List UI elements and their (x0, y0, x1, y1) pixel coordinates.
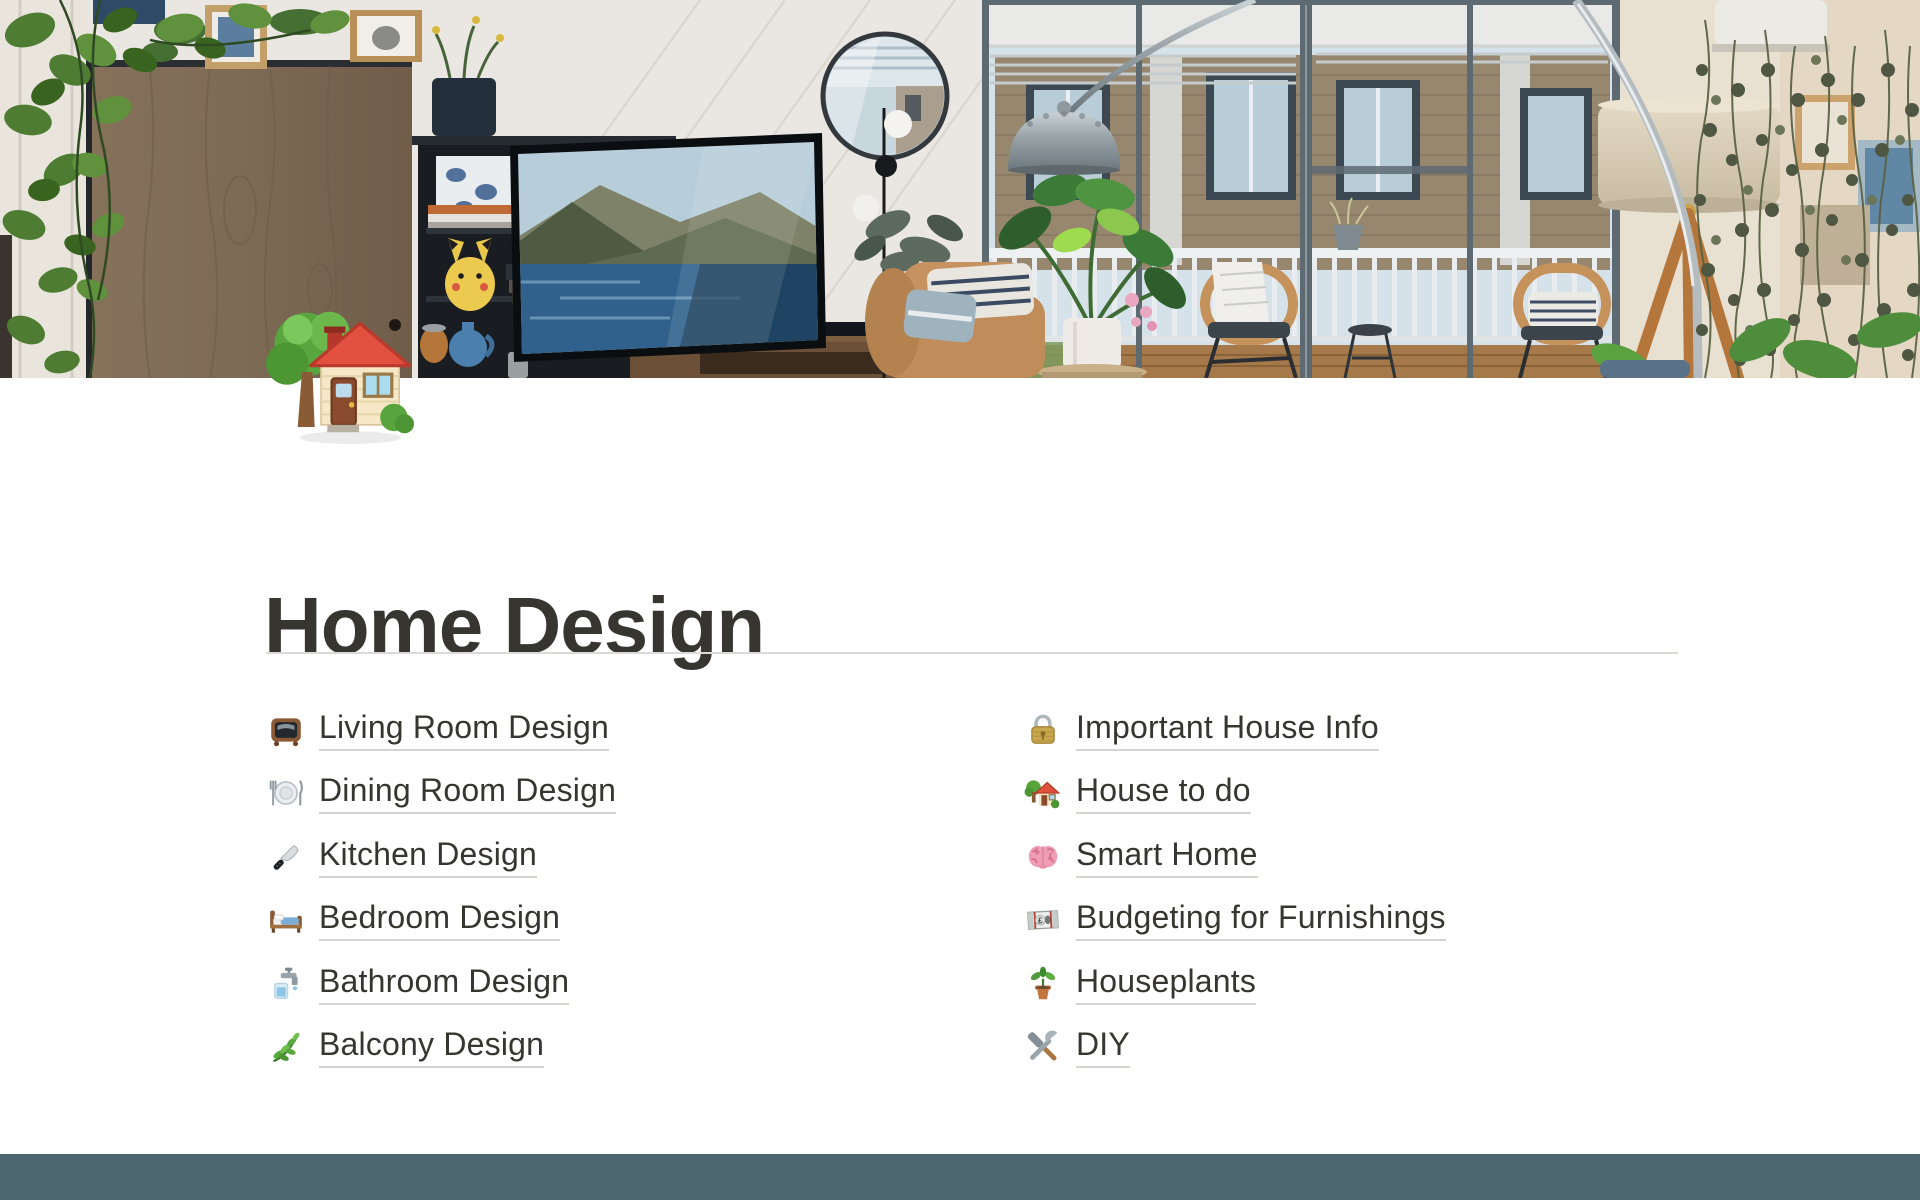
page-link-houseplants[interactable]: Houseplants (1023, 963, 1256, 1005)
page-link-bathroom-design[interactable]: Bathroom Design (266, 963, 569, 1005)
page-link-label: Dining Room Design (319, 772, 616, 814)
brain-icon (1023, 837, 1063, 877)
hammer-wrench-icon (1023, 1027, 1063, 1067)
page-link-kitchen-design[interactable]: Kitchen Design (266, 836, 537, 878)
page-link-living-room-design[interactable]: Living Room Design (266, 709, 609, 751)
page-link-label: Bathroom Design (319, 963, 569, 1005)
page-link-dining-room-design[interactable]: Dining Room Design (266, 772, 616, 814)
pound-banknote-icon: £ (1023, 900, 1063, 940)
svg-text:£: £ (1038, 915, 1044, 925)
fork-knife-plate-icon (266, 773, 306, 813)
page-link-house-to-do[interactable]: House to do (1023, 772, 1251, 814)
kitchen-knife-icon (266, 837, 306, 877)
page-link-label: Bedroom Design (319, 899, 560, 941)
herb-icon (266, 1027, 306, 1067)
link-column-left: Living Room Design Dining Room Design Ki… (266, 698, 921, 1079)
tv-icon (266, 710, 306, 750)
divider (266, 652, 1678, 654)
page-link-label: Budgeting for Furnishings (1076, 899, 1446, 941)
bottom-bar (0, 1154, 1920, 1200)
page-link-smart-home[interactable]: Smart Home (1023, 836, 1258, 878)
page-link-budgeting-for-furnishings[interactable]: £ Budgeting for Furnishings (1023, 899, 1446, 941)
page-link-important-house-info[interactable]: Important House Info (1023, 709, 1379, 751)
page-link-label: Kitchen Design (319, 836, 537, 878)
page-icon-house-with-garden[interactable] (266, 298, 414, 446)
page-link-balcony-design[interactable]: Balcony Design (266, 1026, 544, 1068)
page-link-label: House to do (1076, 772, 1251, 814)
page-link-label: Balcony Design (319, 1026, 544, 1068)
link-columns: Living Room Design Dining Room Design Ki… (266, 698, 1678, 1079)
link-column-right: Important House Info House to do Smart H… (1023, 698, 1678, 1079)
page-link-diy[interactable]: DIY (1023, 1026, 1130, 1068)
page-title[interactable]: Home Design (264, 582, 764, 670)
page-link-label: Important House Info (1076, 709, 1379, 751)
potted-plant-icon (1023, 964, 1063, 1004)
page-link-label: Houseplants (1076, 963, 1256, 1005)
page-link-label: DIY (1076, 1026, 1130, 1068)
notion-page: PLANTOPEDIA (0, 0, 1920, 1200)
page-link-bedroom-design[interactable]: Bedroom Design (266, 899, 560, 941)
page-link-label: Smart Home (1076, 836, 1258, 878)
lock-icon (1023, 710, 1063, 750)
bed-icon (266, 900, 306, 940)
potable-water-icon (266, 964, 306, 1004)
house-garden-icon (1023, 773, 1063, 813)
page-link-label: Living Room Design (319, 709, 609, 751)
